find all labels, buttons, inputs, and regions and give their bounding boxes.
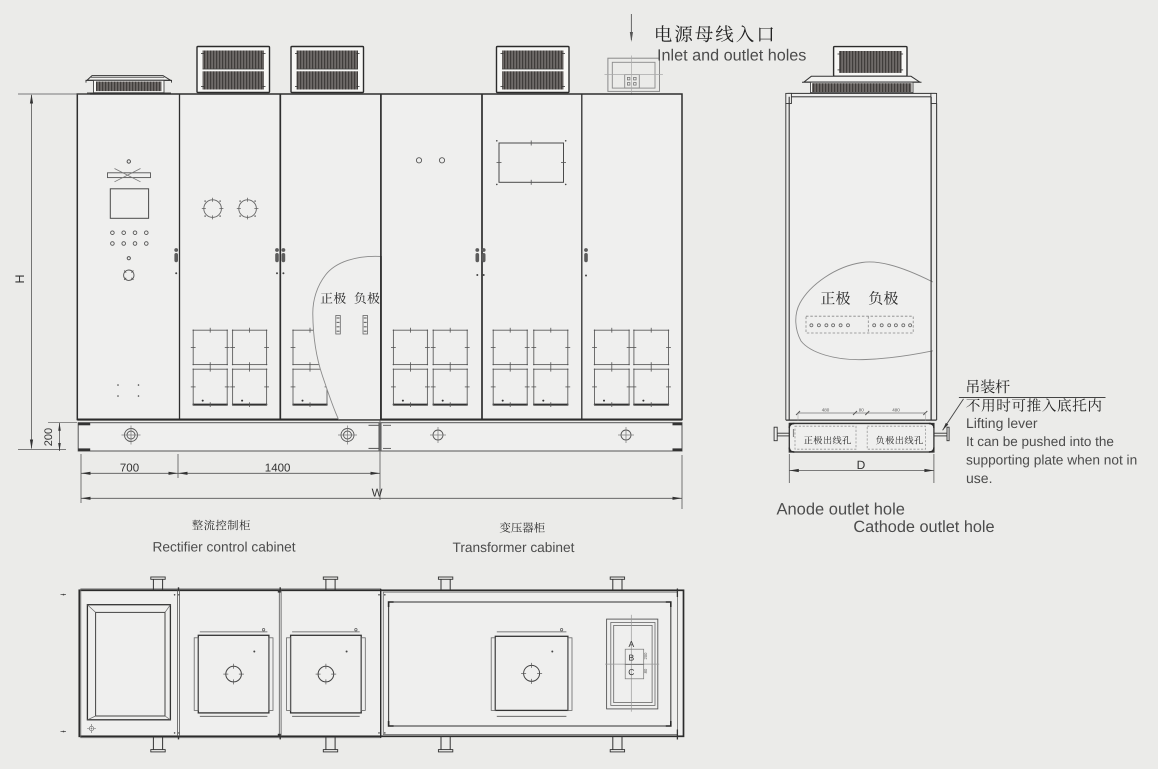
svg-text:Cathode outlet hole: Cathode outlet hole: [853, 518, 994, 536]
svg-text:200: 200: [43, 428, 55, 446]
svg-text:C: C: [628, 667, 634, 677]
svg-text:Rectifier control cabinet: Rectifier control cabinet: [153, 540, 296, 555]
svg-text:200: 200: [643, 652, 648, 660]
svg-text:Lifting lever: Lifting lever: [966, 415, 1038, 431]
svg-text:Inlet and outlet holes: Inlet and outlet holes: [657, 47, 806, 65]
svg-text:It can be pushed into the: It can be pushed into the: [966, 434, 1114, 449]
svg-text:80: 80: [643, 668, 648, 673]
svg-text:80: 80: [859, 408, 865, 413]
svg-text:H: H: [13, 274, 27, 283]
svg-text:Anode outlet hole: Anode outlet hole: [777, 501, 905, 519]
svg-text:700: 700: [120, 463, 139, 475]
svg-text:480: 480: [892, 408, 900, 413]
svg-text:W: W: [372, 488, 383, 500]
svg-text:1400: 1400: [265, 463, 291, 475]
svg-text:B: B: [628, 652, 634, 662]
svg-text:A: A: [628, 639, 634, 649]
svg-text:Transformer cabinet: Transformer cabinet: [453, 540, 575, 555]
svg-text:use.: use.: [966, 470, 992, 486]
svg-text:supporting plate when not in: supporting plate when not in: [966, 453, 1137, 468]
svg-text:D: D: [857, 458, 866, 472]
svg-text:480: 480: [822, 408, 830, 413]
